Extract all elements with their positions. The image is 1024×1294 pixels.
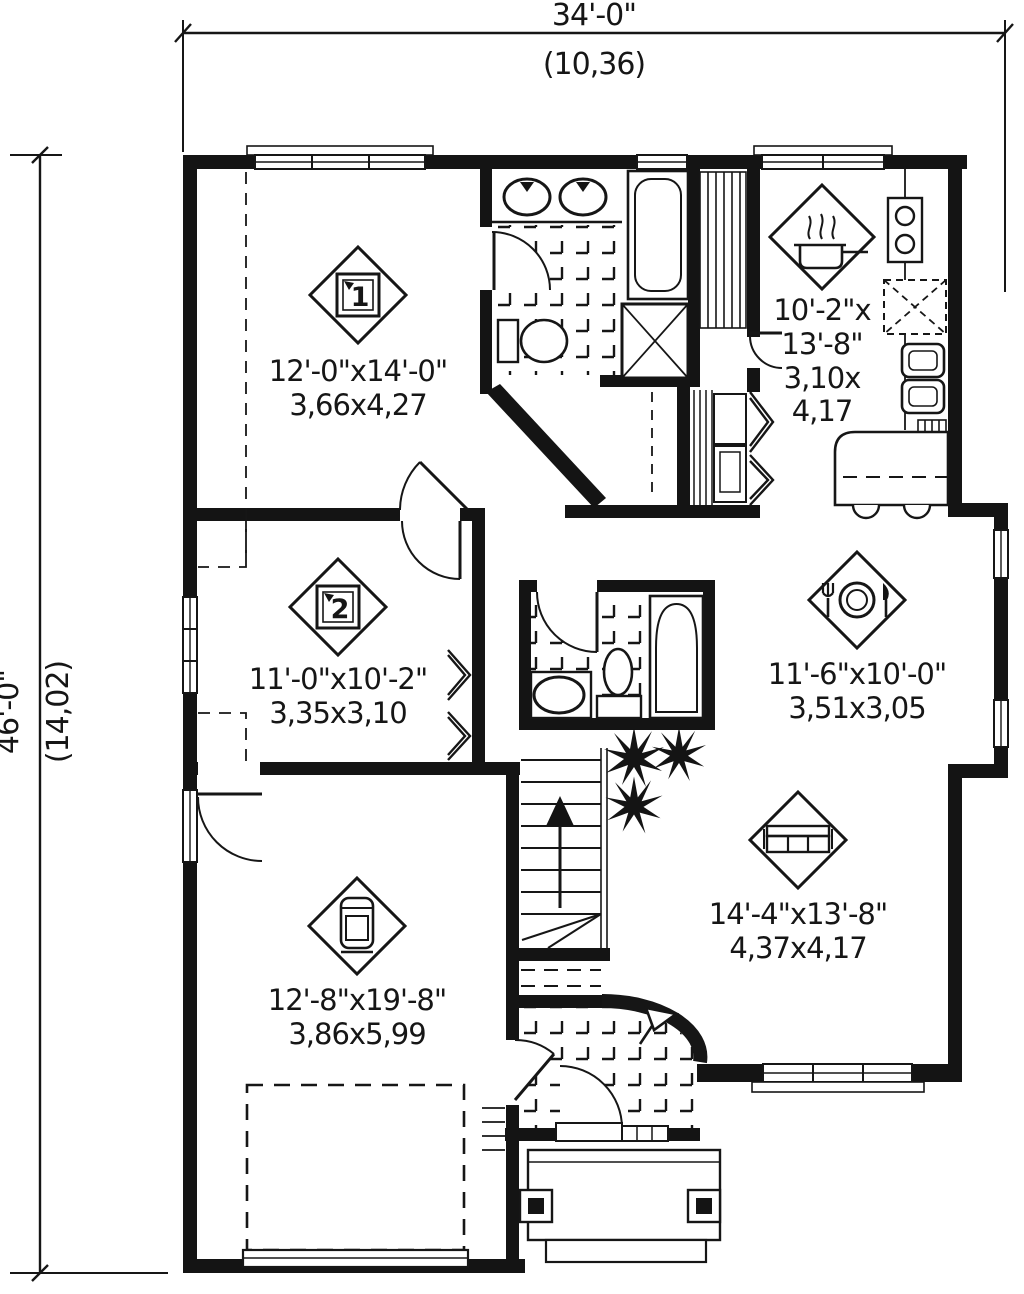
- kitchen-dims-4: 4,17: [792, 394, 853, 428]
- porch-post: [520, 1190, 552, 1222]
- landing-dashed: [521, 970, 601, 986]
- linen-shelves: [700, 172, 746, 328]
- floor-plan-canvas: 34'-0" (10,36) 46'-0" (14,02): [0, 0, 1024, 1294]
- kitchen-window: [754, 146, 892, 169]
- car-icon: [309, 878, 405, 974]
- bedroom1-window: [247, 146, 433, 169]
- bedroom2-number: 2: [331, 594, 350, 625]
- toilet-tank: [498, 320, 518, 362]
- top-dimension-metric: (10,36): [543, 47, 645, 82]
- living-window: [752, 1064, 924, 1092]
- porch-post: [688, 1190, 720, 1222]
- kitchen-dims-1: 10'-2"x: [773, 293, 871, 327]
- bedroom1-door: [400, 462, 468, 510]
- kitchen-dims-2: 13'-8": [781, 327, 862, 361]
- garage-dims-imperial: 12'-8"x19'-8": [268, 983, 446, 1017]
- bedroom2-dims-metric: 3,35x3,10: [269, 696, 406, 730]
- peninsula-counter: [835, 432, 948, 518]
- bedroom1-dims-metric: 3,66x4,27: [289, 388, 426, 422]
- garage-dims-metric: 3,86x5,99: [288, 1017, 425, 1051]
- kitchen-door: [750, 333, 782, 368]
- dining-window-lower: [994, 700, 1008, 747]
- kitchen-dims-3: 3,10x: [784, 361, 862, 395]
- double-sink: [902, 344, 944, 413]
- dining-window-upper: [994, 530, 1008, 578]
- garage-window: [183, 790, 197, 862]
- bath-window: [637, 155, 687, 169]
- plant-starburst: [652, 727, 706, 781]
- winder-treads: [522, 914, 601, 948]
- top-dimension-imperial: 34'-0": [552, 0, 636, 33]
- porch: [520, 1150, 720, 1262]
- washer-dryer: [714, 394, 746, 502]
- bedroom2-dims-imperial: 11'-0"x10'-2": [249, 662, 427, 696]
- room-living: 14'-4"x13'-8" 4,37x4,17: [709, 792, 887, 965]
- toilet-bowl: [604, 649, 632, 695]
- front-sidelight: [622, 1126, 668, 1141]
- dining-dims-imperial: 11'-6"x10'-0": [768, 657, 946, 691]
- room-dining: 11'-6"x10'-0" 3,51x3,05: [768, 552, 946, 725]
- left-dimension-metric: (14,02): [41, 661, 76, 763]
- stove: [888, 198, 922, 262]
- room-bedroom-1: 1 12'-0"x14'-0" 3,66x4,27: [269, 247, 447, 422]
- bedroom1-number: 1: [351, 282, 370, 313]
- dimension-left: 46'-0" (14,02): [0, 147, 168, 1281]
- porch-step: [546, 1240, 706, 1262]
- living-dims-metric: 4,37x4,17: [729, 931, 866, 965]
- plants: [604, 727, 706, 834]
- basement-steps: [482, 1108, 505, 1150]
- living-dims-imperial: 14'-4"x13'-8": [709, 897, 887, 931]
- laundry-bifold: [750, 392, 773, 505]
- bedroom1-dims-imperial: 12'-0"x14'-0": [269, 354, 447, 388]
- bedroom2-closet-dashed: [198, 520, 246, 762]
- stool: [853, 505, 879, 518]
- room-bedroom-2: 2 11'-0"x10'-2" 3,35x3,10: [249, 559, 427, 730]
- bathtub: [628, 171, 688, 299]
- garage-ceiling-dashed: [247, 1085, 464, 1250]
- plant-starburst: [606, 777, 663, 834]
- bedroom2-closet-bifold: [448, 650, 470, 760]
- bathtub: [650, 596, 703, 718]
- garage-house-door: [198, 794, 262, 861]
- room-garage: 12'-8"x19'-8" 3,86x5,99: [268, 878, 446, 1051]
- sofa-icon: [750, 792, 846, 888]
- sink: [534, 677, 584, 713]
- left-dimension-imperial: 46'-0": [0, 670, 26, 754]
- bedroom2-door: [402, 521, 460, 579]
- shower-stall: [622, 304, 688, 378]
- toilet-bowl: [521, 320, 567, 362]
- floor-plan-svg: 34'-0" (10,36) 46'-0" (14,02): [0, 0, 1024, 1294]
- closet-shelving: [694, 390, 712, 505]
- dining-dims-metric: 3,51x3,05: [788, 691, 925, 725]
- bedroom2-window: [183, 597, 197, 693]
- dining-plate-icon: [809, 552, 905, 648]
- room-kitchen: 10'-2"x 13'-8" 3,10x 4,17: [770, 185, 874, 428]
- toilet-tank: [597, 696, 641, 718]
- stool: [904, 505, 930, 518]
- laundry-closet: [652, 390, 746, 505]
- cooking-pot-icon: [770, 185, 874, 289]
- refrigerator: [884, 280, 946, 334]
